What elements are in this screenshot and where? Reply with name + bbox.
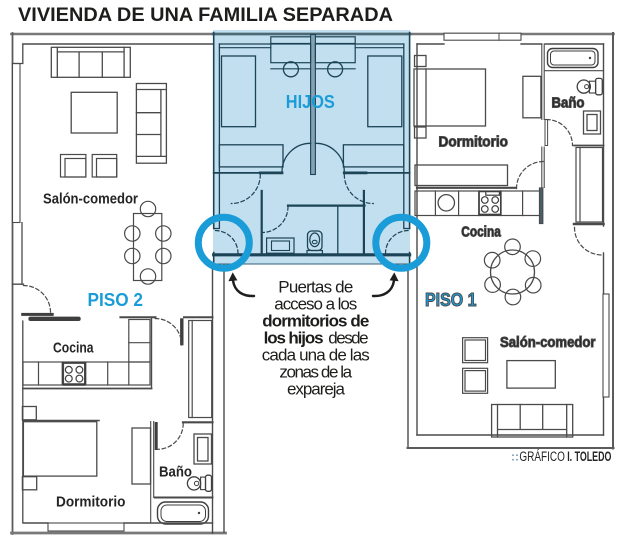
svg-text:I. TOLEDO: I. TOLEDO (567, 449, 611, 464)
svg-text:PISO 1: PISO 1 (425, 289, 477, 310)
svg-text:Baño: Baño (552, 95, 585, 112)
svg-text:HIJOS: HIJOS (286, 91, 335, 112)
svg-text:Salón-comedor: Salón-comedor (43, 191, 138, 208)
svg-text:::: :: (511, 450, 519, 464)
svg-text:Cocina: Cocina (53, 339, 94, 356)
svg-text:Dormitorio: Dormitorio (439, 133, 509, 150)
svg-text:Dormitorio: Dormitorio (56, 494, 126, 511)
svg-text:Salón-comedor: Salón-comedor (500, 334, 596, 351)
svg-text:GRÁFICO: GRÁFICO (519, 449, 565, 464)
svg-text:Cocina: Cocina (461, 223, 501, 240)
svg-text:Baño: Baño (159, 464, 192, 481)
svg-text:VIVIENDA DE UNA FAMILIA SEPARA: VIVIENDA DE UNA FAMILIA SEPARADA (18, 5, 393, 26)
svg-text:PISO 2: PISO 2 (88, 289, 144, 310)
svg-text:expareja: expareja (287, 380, 346, 399)
